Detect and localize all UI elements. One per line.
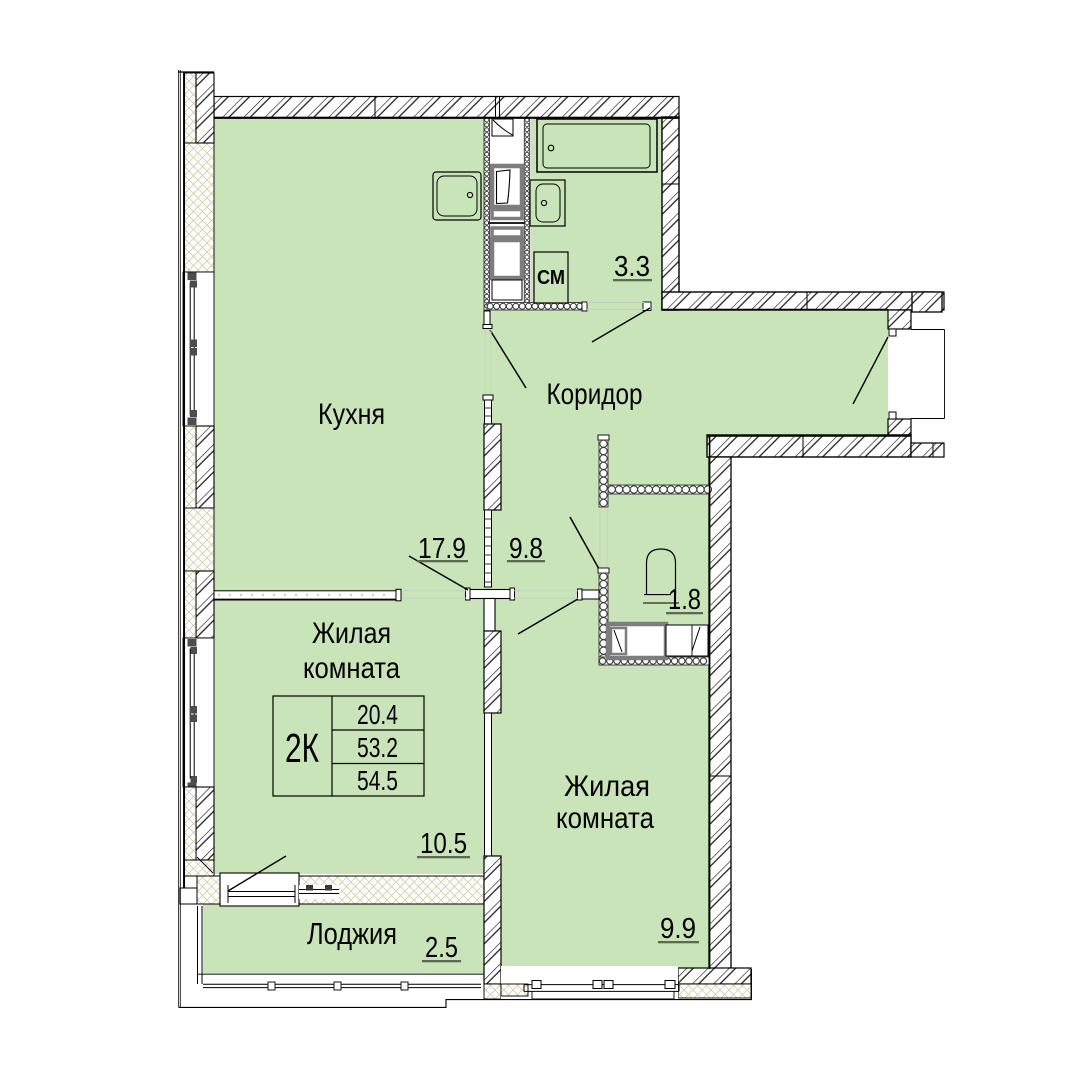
svg-text:комната: комната xyxy=(556,802,654,835)
svg-text:комната: комната xyxy=(303,652,400,685)
svg-text:Жилая: Жилая xyxy=(564,770,650,803)
svg-text:Коридор: Коридор xyxy=(547,378,643,411)
svg-text:Кухня: Кухня xyxy=(318,398,385,431)
svg-text:53.2: 53.2 xyxy=(357,732,398,763)
svg-text:9.9: 9.9 xyxy=(660,913,696,945)
svg-text:20.4: 20.4 xyxy=(357,699,398,730)
svg-text:Лоджия: Лоджия xyxy=(307,916,397,951)
svg-text:2.5: 2.5 xyxy=(425,932,458,964)
svg-text:54.5: 54.5 xyxy=(357,765,398,796)
svg-text:2К: 2К xyxy=(285,725,319,771)
svg-text:СМ: СМ xyxy=(537,266,565,289)
svg-text:3.3: 3.3 xyxy=(614,251,650,283)
svg-text:Жилая: Жилая xyxy=(312,617,391,650)
svg-text:1.8: 1.8 xyxy=(668,584,701,616)
svg-text:10.5: 10.5 xyxy=(420,828,467,860)
